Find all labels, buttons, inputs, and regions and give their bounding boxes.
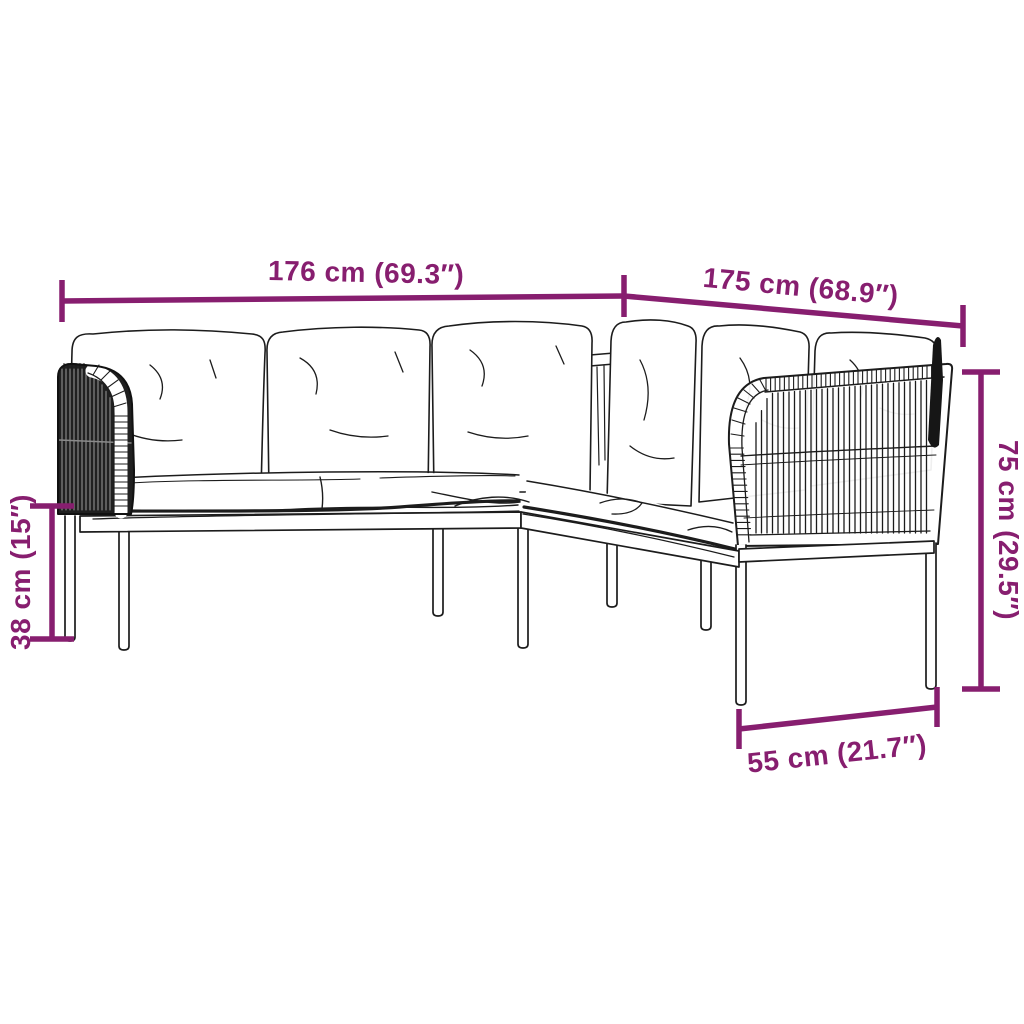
- product-dimension-illustration: 176 cm (69.3″) 175 cm (68.9″) 75 cm (29.…: [0, 0, 1024, 1024]
- dimension-label-75: 75 cm (29.5″): [993, 440, 1024, 620]
- back-cushion: [267, 327, 430, 492]
- dimension-label-38: 38 cm (15″): [5, 494, 36, 650]
- dimension-seat-height: 38 cm (15″): [5, 494, 74, 650]
- sofa-leg: [518, 514, 528, 648]
- back-cushion: [432, 322, 592, 493]
- sofa-leg: [65, 516, 75, 641]
- dimension-label-55: 55 cm (21.7″): [746, 728, 929, 778]
- sofa-line-art: [58, 320, 952, 705]
- sofa-leg: [607, 537, 617, 607]
- right-arm-panel: [729, 364, 952, 546]
- diagram-canvas: 176 cm (69.3″) 175 cm (68.9″) 75 cm (29.…: [0, 0, 1024, 1024]
- sofa-leg: [119, 516, 129, 650]
- dimension-label-176: 176 cm (69.3″): [268, 255, 465, 290]
- dimension-top-left-width: 176 cm (69.3″): [62, 255, 624, 322]
- left-arm-panel: [58, 364, 134, 515]
- corner-back-cushion: [607, 320, 696, 506]
- dimension-seat-depth: 55 cm (21.7″): [739, 687, 937, 779]
- sofa-leg: [701, 552, 711, 630]
- dimension-overall-height: 75 cm (29.5″): [962, 372, 1024, 689]
- sofa-leg: [433, 516, 443, 616]
- sofa-leg: [926, 543, 936, 689]
- sofa-leg: [736, 545, 746, 705]
